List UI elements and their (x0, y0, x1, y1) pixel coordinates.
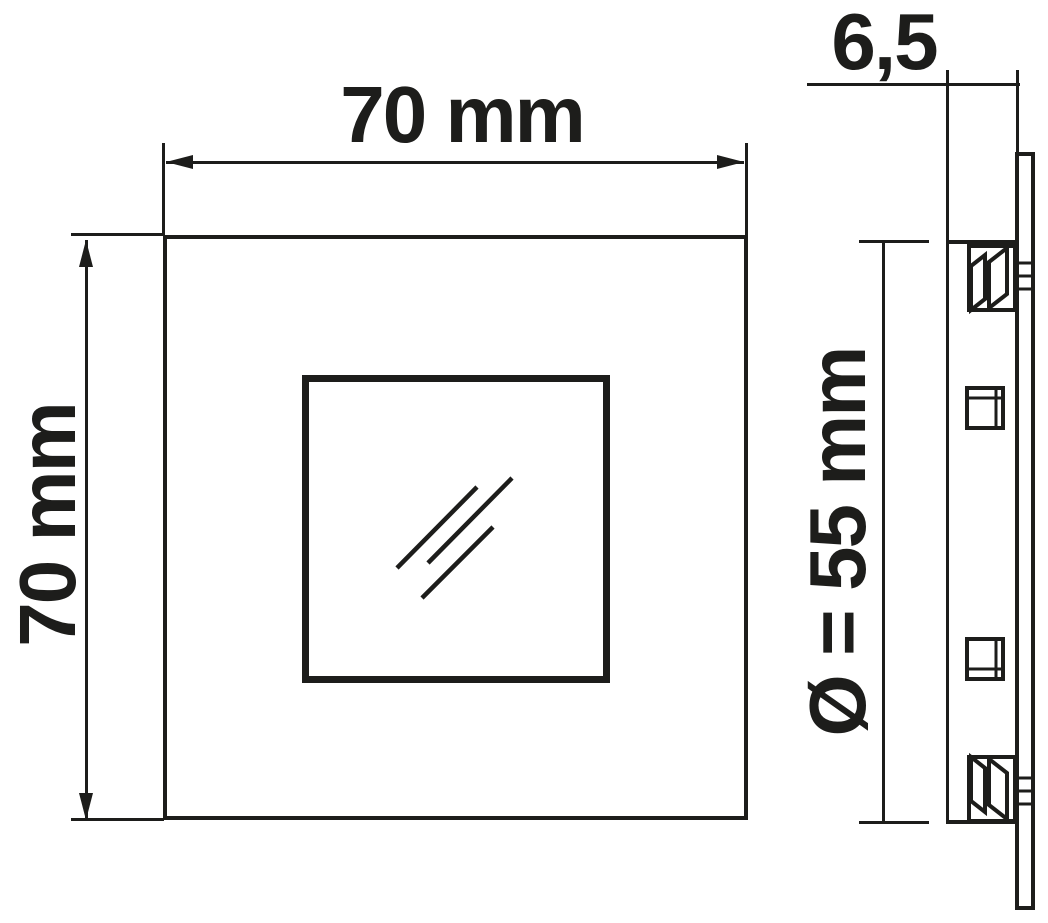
mounting-clip-bottom-icon (969, 757, 1033, 821)
drawing-detail-shapes (0, 0, 1048, 923)
terminal-box-lower-icon (967, 639, 1003, 679)
mounting-clip-top-icon (969, 246, 1033, 310)
terminal-box-upper-icon (967, 388, 1003, 428)
glass-hatch-lines (397, 478, 512, 598)
technical-dimension-drawing: 70 mm 70 mm 6,5 Ø = 55 mm (0, 0, 1048, 923)
